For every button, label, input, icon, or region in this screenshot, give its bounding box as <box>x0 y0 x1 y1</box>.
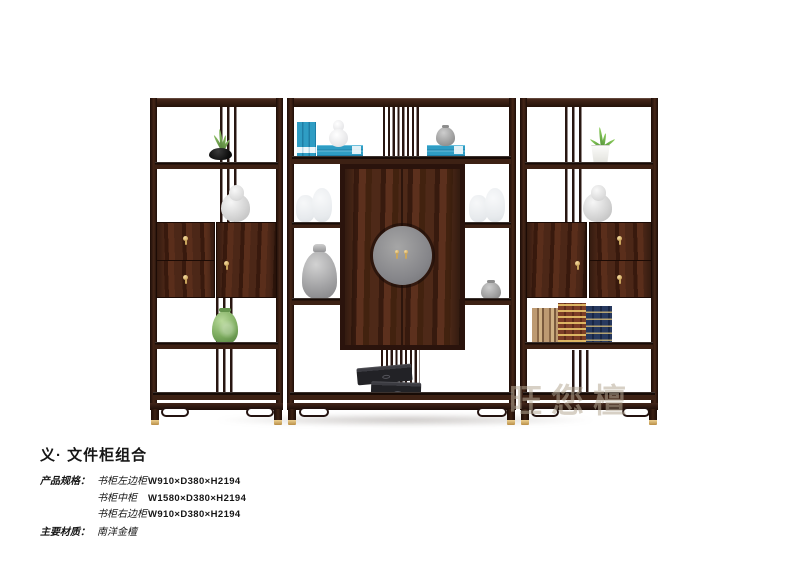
brand-watermark: 旺您檀 <box>509 386 635 419</box>
door-keyhole <box>224 261 229 266</box>
white-gourd-vase <box>329 120 348 147</box>
top-rail <box>287 98 516 107</box>
glass-vases <box>469 188 505 222</box>
black-bowl-planter <box>209 148 232 160</box>
drawer <box>589 222 652 261</box>
plant-decor <box>208 122 234 150</box>
green-porcelain-vase <box>212 311 238 344</box>
page-title: 义· 文件柜组合 <box>40 444 246 465</box>
large-gray-jar <box>302 251 337 299</box>
bottom-shelf <box>290 392 513 400</box>
spec-item-dimensions: W910×D380×H2194 <box>148 474 241 491</box>
lion-statue <box>583 193 612 222</box>
top-shelf <box>292 156 511 164</box>
round-door-plate <box>373 226 432 285</box>
material-row: 主要材质： 南洋金檀 <box>40 525 246 542</box>
brass-foot <box>521 420 529 425</box>
frame-post <box>287 98 294 410</box>
spec-row: 产品规格： 书柜左边柜 W910×D380×H2194 <box>40 474 246 491</box>
brass-foot <box>288 420 296 425</box>
spec-item-dimensions: W1580×D380×H2194 <box>148 491 246 508</box>
glass-vases <box>296 188 332 222</box>
leg <box>274 409 282 420</box>
cabinet-door <box>216 222 277 298</box>
spec-item-name: 书柜左边柜 <box>97 474 148 491</box>
spec-item-name: 书柜中柜 <box>97 491 148 508</box>
side-shelf <box>292 222 340 228</box>
spec-item-name: 书柜右边柜 <box>97 507 148 524</box>
brass-foot <box>151 420 159 425</box>
right-cabinet-unit <box>520 98 658 427</box>
door-pull <box>404 250 408 254</box>
shelf <box>155 342 278 349</box>
spec-label: 产品规格： <box>40 474 97 491</box>
base-cutout <box>161 407 189 417</box>
base-cutout <box>477 407 507 417</box>
product-info: 义· 文件柜组合 产品规格： 书柜左边柜 W910×D380×H2194 书柜中… <box>40 444 246 541</box>
shelf <box>525 342 653 349</box>
blue-books-stack <box>427 145 465 156</box>
brass-foot <box>507 420 515 425</box>
side-shelf <box>463 222 511 228</box>
leg <box>649 409 657 420</box>
spec-item-dimensions: W910×D380×H2194 <box>148 507 241 524</box>
leg <box>288 409 296 420</box>
leg <box>151 409 159 420</box>
door-pull <box>395 250 399 254</box>
plant-decor <box>588 118 614 148</box>
drawer-knob <box>183 275 188 280</box>
side-shelf <box>463 298 511 305</box>
center-cabinet-doors <box>340 164 465 350</box>
catalog-page: 旺您檀 义· 文件柜组合 产品规格： 书柜左边柜 W910×D380×H2194… <box>0 0 800 566</box>
frame-post <box>276 98 283 410</box>
brass-foot <box>649 420 657 425</box>
left-cabinet-unit <box>150 98 283 427</box>
material-value: 南洋金檀 <box>97 525 148 542</box>
frame-post <box>509 98 516 410</box>
side-shelf <box>292 298 340 305</box>
drawer-knob <box>617 236 622 241</box>
door-keyhole <box>575 261 580 266</box>
shelf <box>525 162 653 169</box>
blue-books <box>297 122 316 156</box>
frame-post <box>651 98 658 410</box>
drawer-knob <box>183 236 188 241</box>
lion-statue <box>221 193 250 222</box>
spec-row: 书柜中柜 W1580×D380×H2194 <box>40 491 246 508</box>
bottom-shelf <box>153 392 280 400</box>
top-rail <box>150 98 283 107</box>
spec-row: 书柜右边柜 W910×D380×H2194 <box>40 507 246 524</box>
base-cutout <box>299 407 329 417</box>
brass-foot <box>274 420 282 425</box>
hanging-slats <box>383 107 419 158</box>
material-label: 主要材质： <box>40 525 97 542</box>
cabinet-door <box>526 222 587 298</box>
top-rail <box>520 98 658 107</box>
gray-jar <box>436 127 455 146</box>
drawer-knob <box>617 275 622 280</box>
base-cutout <box>246 407 274 417</box>
shelf <box>155 162 278 169</box>
middle-cabinet-unit <box>287 98 516 427</box>
